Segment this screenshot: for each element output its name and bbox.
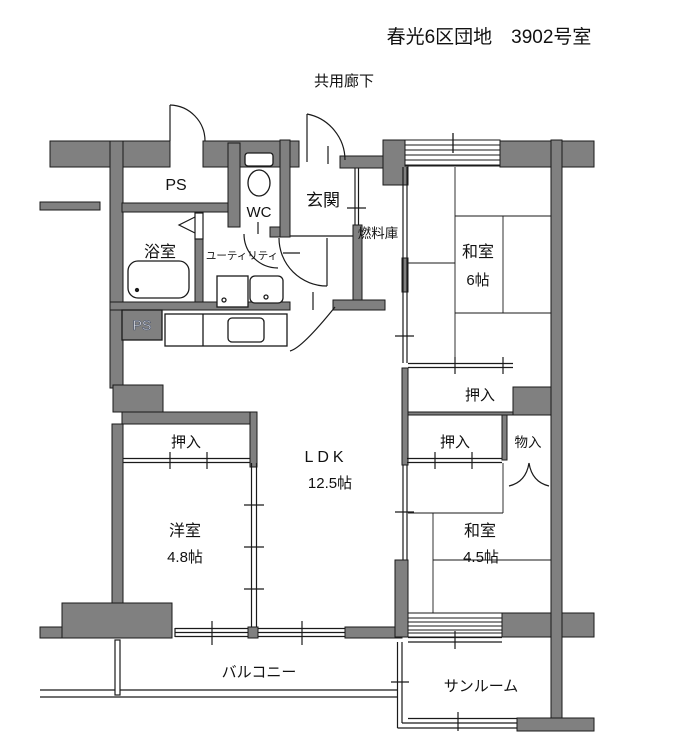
wall <box>248 627 258 638</box>
wall <box>280 140 290 237</box>
room-size-washitsu6: 6帖 <box>466 272 489 289</box>
wall <box>110 141 123 388</box>
wall <box>122 203 228 212</box>
room-label-monoire: 物入 <box>515 435 543 450</box>
wall <box>122 412 257 424</box>
utility-sink-drain <box>264 295 268 299</box>
room-label-balcony: バルコニー <box>222 664 297 681</box>
kitchen-sink <box>228 318 264 342</box>
wall <box>40 202 100 210</box>
kitchen-counter <box>165 314 287 346</box>
floor-plan: PS 春光6区団地 3902号室 共用廊下 PS WC 玄関 燃料庫 和室 6帖… <box>0 0 674 752</box>
room-label-washitsu6: 和室 <box>462 243 494 261</box>
ps-mid-label: PS <box>133 317 152 333</box>
wall <box>513 387 551 415</box>
room-label-sunroom: サンルーム <box>444 678 519 695</box>
room-label-utility: ユーティリティ <box>206 250 278 262</box>
page-title: 春光6区団地 3902号室 <box>387 26 592 48</box>
wall <box>270 227 280 237</box>
room-label-washitsu45: 和室 <box>464 522 496 540</box>
wall <box>40 627 62 638</box>
wall <box>502 415 507 460</box>
room-label-yoshitsu: 洋室 <box>169 522 201 540</box>
wall <box>551 140 562 718</box>
wall <box>113 385 163 412</box>
room-label-fuel: 燃料庫 <box>358 225 399 241</box>
toilet-tank <box>245 153 273 166</box>
wall <box>112 424 123 603</box>
room-size-yoshitsu: 4.8帖 <box>167 549 203 566</box>
floor-plan-page: PS 春光6区団地 3902号室 共用廊下 PS WC 玄関 燃料庫 和室 6帖… <box>0 0 674 752</box>
wall <box>333 300 385 310</box>
wall <box>383 140 408 185</box>
room-label-oshiire-north: 押入 <box>465 387 495 404</box>
room-size-ldk: 12.5帖 <box>308 475 352 492</box>
washing-machine-knob <box>222 298 226 302</box>
ps-shaft-box: PS <box>122 310 162 340</box>
wall <box>402 368 408 465</box>
wall <box>408 412 513 415</box>
room-label-ps-top: PS <box>165 177 186 194</box>
wall <box>228 143 240 227</box>
room-label-bath: 浴室 <box>144 243 176 261</box>
wall <box>500 141 594 167</box>
bathtub <box>128 261 189 298</box>
washing-machine <box>217 276 248 307</box>
wall <box>340 156 383 168</box>
room-label-oshiire-west: 押入 <box>171 434 201 451</box>
bath-door-panel <box>195 213 203 239</box>
room-label-ldk: LDK <box>304 449 347 466</box>
wall <box>517 718 594 731</box>
toilet-bowl <box>248 170 270 196</box>
corridor-label: 共用廊下 <box>314 73 374 90</box>
wall <box>62 603 172 638</box>
room-label-oshiire-south: 押入 <box>440 434 470 451</box>
room-label-wc: WC <box>247 204 272 221</box>
bathtub-drain <box>136 289 139 292</box>
wall <box>395 560 408 637</box>
wall <box>502 613 594 637</box>
room-label-genkan: 玄関 <box>306 191 340 210</box>
wall <box>345 627 402 638</box>
wall <box>250 412 257 467</box>
background <box>0 0 674 752</box>
room-size-washitsu45: 4.5帖 <box>463 549 499 566</box>
